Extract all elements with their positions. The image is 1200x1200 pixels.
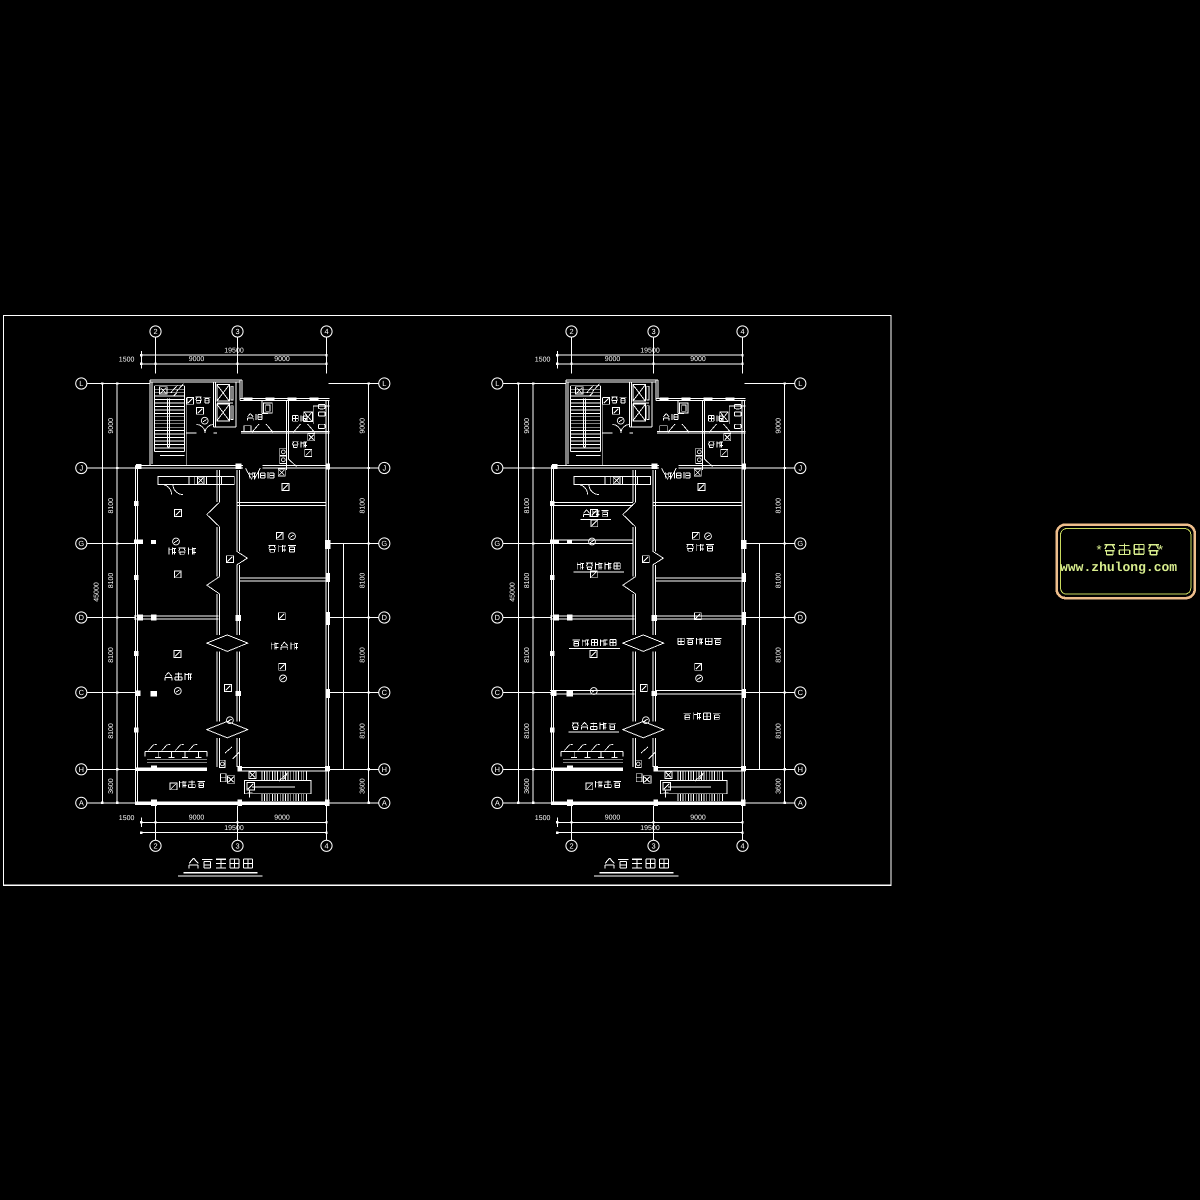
svg-text:9000: 9000 <box>605 356 621 363</box>
svg-text:8100: 8100 <box>360 573 367 589</box>
svg-text:D: D <box>382 613 387 622</box>
svg-text:4: 4 <box>324 841 328 850</box>
svg-text:8100: 8100 <box>776 573 783 589</box>
svg-text:8100: 8100 <box>524 647 531 663</box>
svg-text:3: 3 <box>235 327 239 336</box>
svg-text:9000: 9000 <box>360 418 367 434</box>
svg-text:1500: 1500 <box>535 815 551 822</box>
svg-text:C: C <box>382 688 388 697</box>
svg-text:8100: 8100 <box>524 723 531 739</box>
svg-text:3: 3 <box>651 841 655 850</box>
svg-text:D: D <box>79 613 84 622</box>
svg-text:19500: 19500 <box>640 348 660 355</box>
svg-text:8100: 8100 <box>360 723 367 739</box>
svg-text:9000: 9000 <box>524 418 531 434</box>
svg-text:G: G <box>381 539 387 548</box>
svg-text:2: 2 <box>153 327 157 336</box>
svg-text:19500: 19500 <box>224 825 244 832</box>
svg-text:D: D <box>798 613 803 622</box>
svg-text:3600: 3600 <box>108 778 115 794</box>
svg-text:C: C <box>798 688 804 697</box>
svg-text:8100: 8100 <box>108 723 115 739</box>
svg-text:9000: 9000 <box>108 418 115 434</box>
svg-text:4: 4 <box>740 841 744 850</box>
svg-text:J: J <box>382 464 386 473</box>
svg-text:3600: 3600 <box>776 778 783 794</box>
svg-text:2: 2 <box>153 841 157 850</box>
svg-text:1500: 1500 <box>119 356 135 363</box>
svg-text:H: H <box>79 765 84 774</box>
svg-text:8100: 8100 <box>776 723 783 739</box>
svg-text:3600: 3600 <box>360 778 367 794</box>
svg-text:A: A <box>798 799 803 808</box>
svg-text:8100: 8100 <box>360 498 367 514</box>
svg-text:45000: 45000 <box>510 582 517 602</box>
svg-text:G: G <box>78 539 84 548</box>
svg-text:9000: 9000 <box>776 418 783 434</box>
svg-text:3: 3 <box>235 841 239 850</box>
svg-text:4: 4 <box>740 327 744 336</box>
svg-text:H: H <box>798 765 803 774</box>
svg-text:8100: 8100 <box>524 498 531 514</box>
svg-text:8100: 8100 <box>776 498 783 514</box>
svg-text:19500: 19500 <box>640 825 660 832</box>
svg-text:1500: 1500 <box>535 356 551 363</box>
svg-text:*: * <box>1096 542 1101 557</box>
svg-text:L: L <box>798 379 802 388</box>
svg-text:1500: 1500 <box>119 815 135 822</box>
svg-text:H: H <box>382 765 387 774</box>
svg-text:2: 2 <box>569 841 573 850</box>
svg-text:8100: 8100 <box>360 647 367 663</box>
svg-text:8100: 8100 <box>108 573 115 589</box>
svg-text:J: J <box>495 464 499 473</box>
svg-text:4: 4 <box>324 327 328 336</box>
svg-text:9000: 9000 <box>189 356 205 363</box>
svg-text:45000: 45000 <box>94 582 101 602</box>
svg-text:G: G <box>494 539 500 548</box>
svg-text:C: C <box>495 688 501 697</box>
svg-text:8100: 8100 <box>108 647 115 663</box>
svg-text:8100: 8100 <box>108 498 115 514</box>
svg-text:J: J <box>798 464 802 473</box>
svg-text:9000: 9000 <box>274 815 290 822</box>
svg-text:A: A <box>79 799 84 808</box>
svg-text:G: G <box>797 539 803 548</box>
svg-text:3600: 3600 <box>524 778 531 794</box>
svg-text:L: L <box>495 379 499 388</box>
svg-text:A: A <box>382 799 387 808</box>
svg-text:2: 2 <box>569 327 573 336</box>
svg-text:8100: 8100 <box>776 647 783 663</box>
svg-text:L: L <box>382 379 386 388</box>
svg-text:H: H <box>495 765 500 774</box>
svg-text:3: 3 <box>651 327 655 336</box>
svg-text:L: L <box>79 379 83 388</box>
svg-text:9000: 9000 <box>274 356 290 363</box>
svg-text:9000: 9000 <box>690 356 706 363</box>
svg-text:www.zhulong.com: www.zhulong.com <box>1060 560 1177 575</box>
svg-text:D: D <box>495 613 500 622</box>
svg-text:9000: 9000 <box>605 815 621 822</box>
svg-text:9000: 9000 <box>189 815 205 822</box>
svg-text:J: J <box>79 464 83 473</box>
svg-text:A: A <box>495 799 500 808</box>
svg-text:C: C <box>79 688 85 697</box>
svg-text:19500: 19500 <box>224 348 244 355</box>
svg-text:8100: 8100 <box>524 573 531 589</box>
svg-text:9000: 9000 <box>690 815 706 822</box>
